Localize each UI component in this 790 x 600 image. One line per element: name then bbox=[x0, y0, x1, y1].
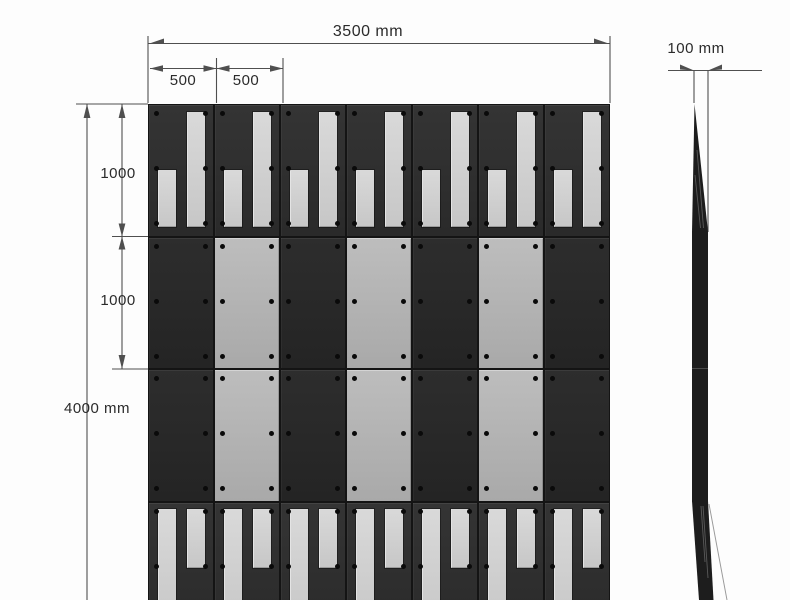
slat-bar bbox=[319, 509, 337, 568]
fastener-dot bbox=[401, 431, 406, 436]
solid-panel-module bbox=[479, 238, 543, 369]
fastener-dot bbox=[220, 509, 225, 514]
slat-panel-module bbox=[347, 503, 411, 600]
fastener-dot bbox=[484, 431, 489, 436]
fastener-dot bbox=[203, 486, 208, 491]
slat-bar bbox=[554, 170, 572, 227]
fastener-dot bbox=[467, 354, 472, 359]
fastener-dot bbox=[418, 111, 423, 116]
slat-bar bbox=[187, 509, 205, 568]
slat-bar bbox=[422, 509, 440, 600]
fastener-dot bbox=[401, 111, 406, 116]
fastener-dot bbox=[418, 166, 423, 171]
fastener-dot bbox=[269, 111, 274, 116]
fastener-dot bbox=[269, 166, 274, 171]
fastener-dot bbox=[220, 166, 225, 171]
slat-bar bbox=[517, 509, 535, 568]
fastener-dot bbox=[286, 564, 291, 569]
slat-bar bbox=[158, 170, 176, 227]
fastener-dot bbox=[352, 221, 357, 226]
fastener-dot bbox=[550, 431, 555, 436]
fastener-dot bbox=[484, 221, 489, 226]
fastener-dot bbox=[154, 564, 159, 569]
solid-panel-module bbox=[281, 238, 345, 369]
fastener-dot bbox=[286, 354, 291, 359]
solid-panel-module bbox=[149, 370, 213, 501]
slat-bar bbox=[253, 509, 271, 568]
slat-bar bbox=[224, 509, 242, 600]
slat-bar bbox=[290, 170, 308, 227]
fastener-dot bbox=[269, 221, 274, 226]
fastener-dot bbox=[335, 111, 340, 116]
fastener-dot bbox=[599, 376, 604, 381]
slat-bar bbox=[385, 509, 403, 568]
fastener-dot bbox=[467, 431, 472, 436]
slat-panel-module bbox=[281, 503, 345, 600]
fastener-dot bbox=[418, 299, 423, 304]
fastener-dot bbox=[335, 166, 340, 171]
fastener-dot bbox=[154, 221, 159, 226]
fastener-dot bbox=[418, 244, 423, 249]
fastener-dot bbox=[352, 376, 357, 381]
fastener-dot bbox=[352, 354, 357, 359]
fastener-dot bbox=[220, 111, 225, 116]
fastener-dot bbox=[401, 244, 406, 249]
slat-panel-module bbox=[215, 503, 279, 600]
fastener-dot bbox=[467, 221, 472, 226]
fastener-dot bbox=[467, 111, 472, 116]
slat-panel-module bbox=[149, 503, 213, 600]
fastener-dot bbox=[203, 354, 208, 359]
fastener-dot bbox=[418, 509, 423, 514]
fastener-dot bbox=[550, 111, 555, 116]
fastener-dot bbox=[467, 509, 472, 514]
slat-bar bbox=[224, 170, 242, 227]
slat-bar bbox=[554, 509, 572, 600]
fastener-dot bbox=[550, 354, 555, 359]
fastener-dot bbox=[550, 244, 555, 249]
fastener-dot bbox=[401, 166, 406, 171]
fastener-dot bbox=[550, 486, 555, 491]
dim-row-heights bbox=[112, 104, 150, 369]
fastener-dot bbox=[154, 509, 159, 514]
fastener-dot bbox=[335, 509, 340, 514]
fastener-dot bbox=[335, 431, 340, 436]
solid-panel-module bbox=[479, 370, 543, 501]
slat-panel-module bbox=[479, 503, 543, 600]
fastener-dot bbox=[286, 111, 291, 116]
fastener-dot bbox=[418, 376, 423, 381]
fastener-dot bbox=[533, 509, 538, 514]
fastener-dot bbox=[335, 299, 340, 304]
solid-panel-module bbox=[215, 370, 279, 501]
fastener-dot bbox=[533, 354, 538, 359]
fastener-dot bbox=[335, 486, 340, 491]
solid-panel-module bbox=[215, 238, 279, 369]
fastener-dot bbox=[533, 564, 538, 569]
fastener-dot bbox=[599, 354, 604, 359]
fastener-dot bbox=[286, 221, 291, 226]
fastener-dot bbox=[154, 166, 159, 171]
fastener-dot bbox=[154, 354, 159, 359]
fastener-dot bbox=[269, 244, 274, 249]
fastener-dot bbox=[484, 509, 489, 514]
fastener-dot bbox=[550, 299, 555, 304]
fastener-dot bbox=[418, 431, 423, 436]
fastener-dot bbox=[401, 486, 406, 491]
fastener-dot bbox=[286, 299, 291, 304]
slat-bar bbox=[356, 170, 374, 227]
fastener-dot bbox=[269, 509, 274, 514]
fastener-dot bbox=[550, 564, 555, 569]
fastener-dot bbox=[269, 486, 274, 491]
fastener-dot bbox=[599, 111, 604, 116]
slat-bar bbox=[583, 509, 601, 568]
solid-panel-module bbox=[149, 238, 213, 369]
fastener-dot bbox=[484, 486, 489, 491]
fastener-dot bbox=[550, 509, 555, 514]
fastener-dot bbox=[203, 166, 208, 171]
fastener-dot bbox=[599, 166, 604, 171]
fastener-dot bbox=[401, 221, 406, 226]
fastener-dot bbox=[203, 431, 208, 436]
fastener-dot bbox=[220, 564, 225, 569]
slat-panel-module bbox=[479, 105, 543, 236]
fastener-dot bbox=[203, 244, 208, 249]
fastener-dot bbox=[533, 221, 538, 226]
dim-total-width-label: 3500 mm bbox=[288, 24, 448, 40]
fastener-dot bbox=[352, 244, 357, 249]
fastener-dot bbox=[550, 166, 555, 171]
fastener-dot bbox=[220, 376, 225, 381]
fastener-dot bbox=[599, 221, 604, 226]
fastener-dot bbox=[467, 299, 472, 304]
fastener-dot bbox=[335, 564, 340, 569]
fastener-dot bbox=[467, 166, 472, 171]
slat-panel-module bbox=[545, 503, 609, 600]
fastener-dot bbox=[220, 486, 225, 491]
fastener-dot bbox=[335, 221, 340, 226]
fastener-dot bbox=[154, 486, 159, 491]
fastener-dot bbox=[286, 166, 291, 171]
fastener-dot bbox=[286, 509, 291, 514]
slat-panel-module bbox=[281, 105, 345, 236]
slat-panel-module bbox=[413, 503, 477, 600]
fastener-dot bbox=[203, 376, 208, 381]
fastener-dot bbox=[352, 564, 357, 569]
fastener-dot bbox=[220, 299, 225, 304]
dim-depth-label: 100 mm bbox=[646, 41, 746, 56]
fastener-dot bbox=[401, 376, 406, 381]
fastener-dot bbox=[418, 486, 423, 491]
fastener-dot bbox=[484, 111, 489, 116]
fastener-dot bbox=[401, 354, 406, 359]
dim-row-height-label-1: 1000 bbox=[88, 166, 148, 181]
fastener-dot bbox=[533, 431, 538, 436]
fastener-dot bbox=[418, 221, 423, 226]
fastener-dot bbox=[467, 564, 472, 569]
fastener-dot bbox=[533, 299, 538, 304]
side-view-profile bbox=[692, 104, 727, 600]
technical-drawing-canvas: 3500 mm 500 500 1000 1000 4000 mm 100 mm bbox=[0, 0, 790, 600]
solid-panel-module bbox=[281, 370, 345, 501]
dim-module-width-label-1: 500 bbox=[158, 73, 208, 88]
solid-panel-module bbox=[545, 370, 609, 501]
fastener-dot bbox=[484, 299, 489, 304]
fastener-dot bbox=[269, 431, 274, 436]
fastener-dot bbox=[484, 354, 489, 359]
slat-panel-module bbox=[347, 105, 411, 236]
solid-panel-module bbox=[413, 370, 477, 501]
fastener-dot bbox=[154, 431, 159, 436]
fastener-dot bbox=[352, 486, 357, 491]
fastener-dot bbox=[269, 354, 274, 359]
slat-panel-module bbox=[149, 105, 213, 236]
fastener-dot bbox=[484, 166, 489, 171]
slat-bar bbox=[356, 509, 374, 600]
fastener-dot bbox=[401, 299, 406, 304]
solid-panel-module bbox=[347, 238, 411, 369]
dim-depth bbox=[668, 65, 762, 233]
fastener-dot bbox=[335, 244, 340, 249]
front-elevation-panel-grid bbox=[148, 104, 610, 600]
fastener-dot bbox=[533, 166, 538, 171]
fastener-dot bbox=[335, 376, 340, 381]
slat-bar bbox=[488, 509, 506, 600]
slat-bar bbox=[290, 509, 308, 600]
fastener-dot bbox=[154, 244, 159, 249]
fastener-dot bbox=[203, 299, 208, 304]
slat-bar bbox=[158, 509, 176, 600]
fastener-dot bbox=[352, 299, 357, 304]
fastener-dot bbox=[599, 299, 604, 304]
fastener-dot bbox=[533, 376, 538, 381]
fastener-dot bbox=[484, 244, 489, 249]
slat-bar bbox=[451, 509, 469, 568]
fastener-dot bbox=[599, 486, 604, 491]
slat-panel-module bbox=[413, 105, 477, 236]
fastener-dot bbox=[467, 244, 472, 249]
fastener-dot bbox=[484, 564, 489, 569]
fastener-dot bbox=[599, 244, 604, 249]
fastener-dot bbox=[550, 221, 555, 226]
fastener-dot bbox=[286, 431, 291, 436]
fastener-dot bbox=[401, 509, 406, 514]
solid-panel-module bbox=[413, 238, 477, 369]
dim-row-height-label-2: 1000 bbox=[88, 293, 148, 308]
fastener-dot bbox=[401, 564, 406, 569]
fastener-dot bbox=[599, 431, 604, 436]
fastener-dot bbox=[352, 111, 357, 116]
fastener-dot bbox=[335, 354, 340, 359]
fastener-dot bbox=[286, 486, 291, 491]
fastener-dot bbox=[484, 376, 489, 381]
fastener-dot bbox=[352, 166, 357, 171]
fastener-dot bbox=[220, 221, 225, 226]
fastener-dot bbox=[599, 509, 604, 514]
fastener-dot bbox=[533, 486, 538, 491]
fastener-dot bbox=[220, 431, 225, 436]
fastener-dot bbox=[418, 564, 423, 569]
fastener-dot bbox=[269, 299, 274, 304]
dim-total-height-label: 4000 mm bbox=[47, 401, 147, 416]
fastener-dot bbox=[203, 509, 208, 514]
solid-panel-module bbox=[347, 370, 411, 501]
fastener-dot bbox=[286, 376, 291, 381]
dim-module-width-label-2: 500 bbox=[221, 73, 271, 88]
fastener-dot bbox=[352, 431, 357, 436]
slat-panel-module bbox=[215, 105, 279, 236]
fastener-dot bbox=[154, 299, 159, 304]
fastener-dot bbox=[550, 376, 555, 381]
fastener-dot bbox=[203, 564, 208, 569]
fastener-dot bbox=[286, 244, 291, 249]
fastener-dot bbox=[203, 221, 208, 226]
fastener-dot bbox=[533, 244, 538, 249]
solid-panel-module bbox=[545, 238, 609, 369]
fastener-dot bbox=[467, 486, 472, 491]
fastener-dot bbox=[533, 111, 538, 116]
fastener-dot bbox=[599, 564, 604, 569]
fastener-dot bbox=[220, 354, 225, 359]
fastener-dot bbox=[154, 376, 159, 381]
fastener-dot bbox=[269, 564, 274, 569]
dim-total-width bbox=[148, 36, 610, 103]
fastener-dot bbox=[269, 376, 274, 381]
slat-bar bbox=[488, 170, 506, 227]
fastener-dot bbox=[220, 244, 225, 249]
fastener-dot bbox=[418, 354, 423, 359]
fastener-dot bbox=[203, 111, 208, 116]
slat-panel-module bbox=[545, 105, 609, 236]
slat-bar bbox=[422, 170, 440, 227]
fastener-dot bbox=[467, 376, 472, 381]
fastener-dot bbox=[352, 509, 357, 514]
fastener-dot bbox=[154, 111, 159, 116]
